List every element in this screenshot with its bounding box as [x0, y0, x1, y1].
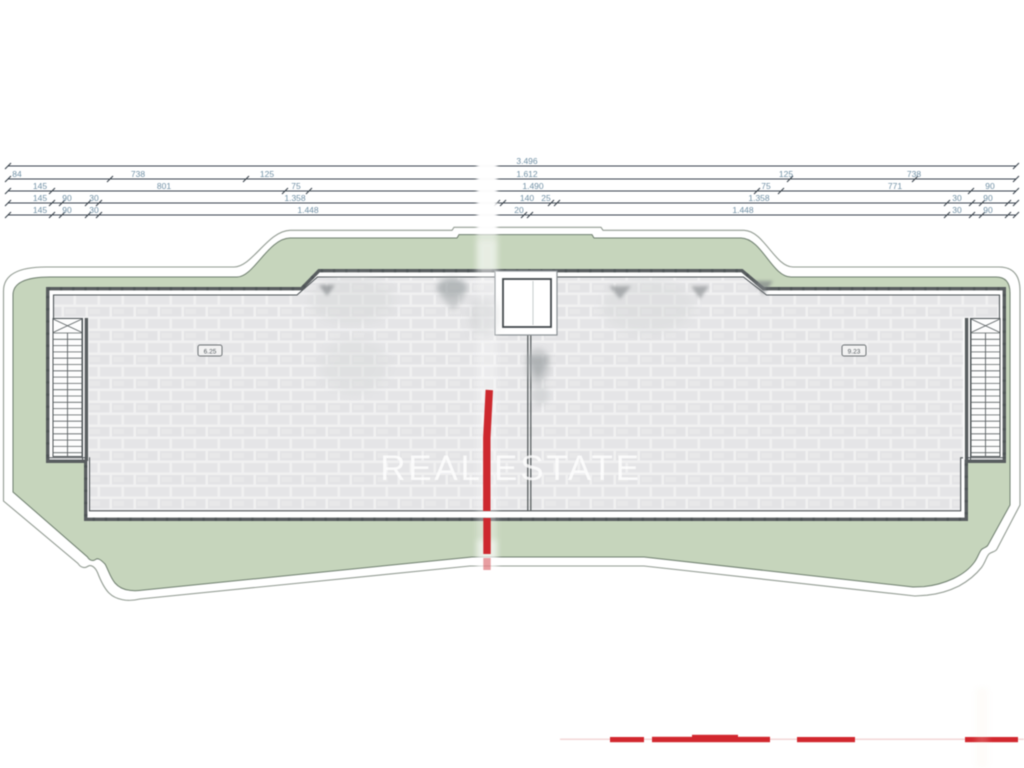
svg-text:738: 738 — [907, 169, 921, 179]
svg-text:1.358: 1.358 — [748, 193, 770, 203]
svg-text:801: 801 — [157, 181, 171, 191]
svg-text:90: 90 — [62, 205, 72, 215]
svg-text:1.612: 1.612 — [516, 169, 538, 179]
svg-text:1.490: 1.490 — [522, 181, 544, 191]
svg-text:1.448: 1.448 — [297, 205, 319, 215]
svg-text:1.358: 1.358 — [284, 193, 306, 203]
svg-text:6.25: 6.25 — [204, 349, 217, 356]
svg-text:125: 125 — [779, 169, 793, 179]
svg-text:145: 145 — [33, 193, 47, 203]
svg-text:90: 90 — [985, 181, 995, 191]
svg-text:90: 90 — [62, 193, 72, 203]
svg-text:3.496: 3.496 — [516, 156, 538, 166]
svg-text:738: 738 — [131, 169, 145, 179]
svg-text:145: 145 — [33, 205, 47, 215]
svg-text:90: 90 — [983, 193, 993, 203]
svg-text:1.448: 1.448 — [732, 205, 754, 215]
svg-text:30: 30 — [952, 193, 962, 203]
svg-text:30: 30 — [952, 205, 962, 215]
svg-text:125: 125 — [260, 169, 274, 179]
svg-text:145: 145 — [33, 181, 47, 191]
svg-text:REAL ESTATE: REAL ESTATE — [380, 449, 642, 488]
svg-text:30: 30 — [89, 193, 99, 203]
svg-text:84: 84 — [12, 169, 22, 179]
svg-text:25: 25 — [541, 193, 551, 203]
svg-text:9.23: 9.23 — [848, 349, 861, 356]
svg-text:30: 30 — [89, 205, 99, 215]
svg-text:75: 75 — [761, 181, 771, 191]
svg-text:771: 771 — [888, 181, 902, 191]
svg-text:20: 20 — [514, 205, 524, 215]
svg-text:140: 140 — [520, 193, 534, 203]
svg-text:75: 75 — [291, 181, 301, 191]
svg-text:90: 90 — [983, 205, 993, 215]
